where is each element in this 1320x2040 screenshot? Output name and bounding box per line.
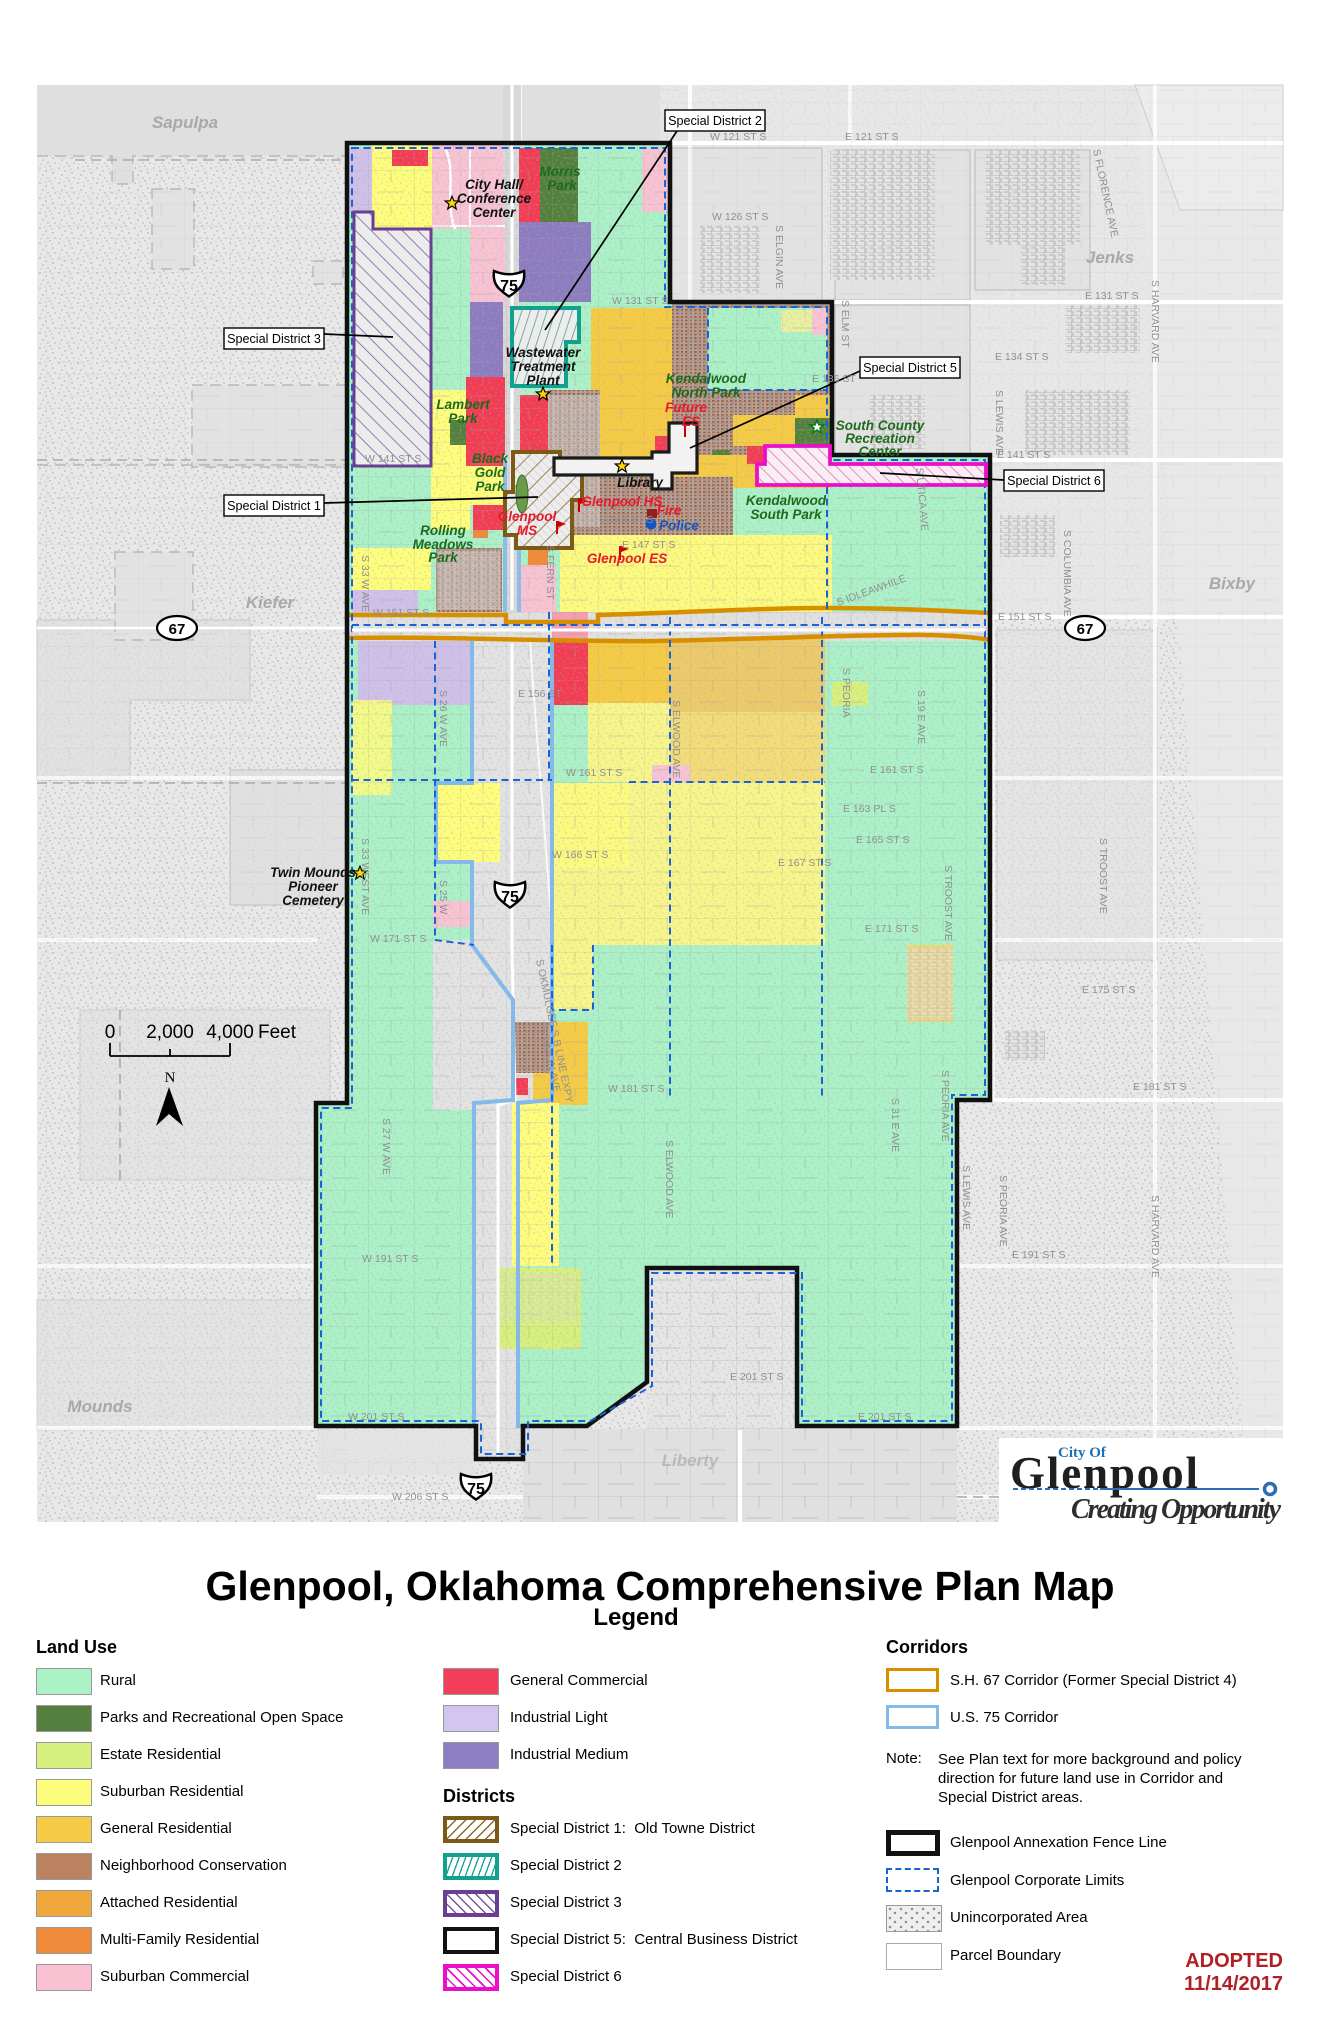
svg-text:Glenpool ES: Glenpool ES (587, 551, 667, 566)
svg-text:City Hall/: City Hall/ (465, 177, 524, 192)
svg-text:S TROOST AVE: S TROOST AVE (942, 865, 954, 941)
svg-text:S HARVARD AVE: S HARVARD AVE (1149, 280, 1161, 363)
svg-text:Special District 1: Special District 1 (227, 499, 321, 513)
svg-text:MS: MS (517, 523, 537, 538)
svg-text:Gold: Gold (475, 465, 506, 480)
svg-text:0: 0 (105, 1022, 116, 1043)
svg-text:Sapulpa: Sapulpa (152, 113, 218, 132)
svg-text:E 121 ST S: E 121 ST S (845, 131, 899, 143)
svg-text:E 131 ST S: E 131 ST S (1085, 290, 1139, 302)
svg-text:4,000: 4,000 (206, 1022, 254, 1043)
svg-text:Glenpool: Glenpool (498, 509, 557, 524)
svg-text:N: N (165, 1070, 176, 1086)
svg-text:Black: Black (472, 451, 510, 466)
svg-text:Treatment: Treatment (510, 359, 576, 374)
svg-text:South Park: South Park (750, 507, 823, 522)
svg-text:E 191 ST S: E 191 ST S (1012, 1249, 1066, 1261)
svg-text:67: 67 (1077, 621, 1094, 638)
svg-text:Special District 6: Special District 6 (1007, 474, 1101, 488)
svg-text:Feet: Feet (258, 1022, 297, 1043)
svg-text:W 131 ST S: W 131 ST S (612, 295, 668, 307)
svg-text:Liberty: Liberty (662, 1451, 720, 1470)
svg-text:E 161 ST S: E 161 ST S (870, 764, 924, 776)
svg-text:75: 75 (500, 278, 518, 295)
svg-text:E 181 ST S: E 181 ST S (1133, 1081, 1187, 1093)
svg-text:S ELWOOD AVE: S ELWOOD AVE (663, 1140, 675, 1218)
svg-text:W 126 ST S: W 126 ST S (712, 211, 768, 223)
svg-text:Park: Park (547, 178, 578, 193)
svg-text:S HARVARD AVE: S HARVARD AVE (1149, 1195, 1161, 1278)
svg-text:67: 67 (169, 621, 186, 638)
svg-text:Twin Mounds: Twin Mounds (270, 865, 356, 880)
svg-text:Park: Park (475, 479, 506, 494)
svg-text:Cemetery: Cemetery (282, 893, 345, 908)
svg-text:Plant: Plant (526, 373, 560, 388)
svg-text:E 146 ST S: E 146 ST S (600, 514, 654, 526)
svg-text:W 121 ST S: W 121 ST S (710, 131, 766, 143)
svg-text:Creating Opportunity: Creating Opportunity (1071, 1494, 1282, 1525)
svg-text:W 161 ST S: W 161 ST S (566, 767, 622, 779)
svg-text:Pioneer: Pioneer (288, 879, 338, 894)
svg-text:W 181 ST S: W 181 ST S (608, 1083, 664, 1095)
svg-text:75: 75 (501, 889, 519, 906)
svg-text:S ELM ST: S ELM ST (839, 300, 851, 348)
svg-text:E 136 ST: E 136 ST (812, 373, 856, 385)
svg-text:Jenks: Jenks (1086, 248, 1134, 267)
svg-text:Future: Future (665, 400, 707, 415)
svg-text:ES: ES (682, 414, 700, 429)
svg-text:S 19 E AVE: S 19 E AVE (915, 690, 927, 744)
svg-text:S PEORIA AVE: S PEORIA AVE (997, 1175, 1009, 1247)
svg-text:Glenpool HS: Glenpool HS (582, 494, 663, 509)
svg-text:Lambert: Lambert (436, 397, 490, 412)
svg-text:Park: Park (448, 411, 479, 426)
svg-text:Center: Center (859, 444, 903, 459)
svg-text:W 166 ST S: W 166 ST S (552, 849, 608, 861)
svg-text:E 156 ST: E 156 ST (518, 688, 562, 700)
svg-text:Wastewater: Wastewater (506, 345, 582, 360)
svg-text:E 171 ST S: E 171 ST S (865, 923, 919, 935)
svg-text:Mounds: Mounds (67, 1397, 132, 1416)
svg-text:Conference: Conference (457, 191, 532, 206)
svg-text:Park: Park (428, 550, 459, 565)
svg-text:E 201 ST S: E 201 ST S (858, 1411, 912, 1423)
svg-text:S TROOST AVE: S TROOST AVE (1097, 838, 1109, 914)
svg-text:E 163 PL S: E 163 PL S (843, 803, 896, 815)
svg-text:North Park: North Park (671, 385, 742, 400)
svg-text:S LEWIS AVE: S LEWIS AVE (993, 390, 1005, 455)
svg-text:Center: Center (473, 205, 517, 220)
svg-text:Fire: Fire (657, 503, 682, 518)
svg-text:S ELGIN AVE: S ELGIN AVE (773, 225, 785, 289)
svg-text:2,000: 2,000 (146, 1022, 194, 1043)
svg-text:S ELWOOD AVE: S ELWOOD AVE (670, 700, 682, 778)
svg-text:Special District 5: Special District 5 (863, 361, 957, 375)
svg-text:Rolling: Rolling (420, 523, 466, 538)
svg-text:Kendalwood: Kendalwood (666, 371, 747, 386)
svg-text:S 33 WEST AVE: S 33 WEST AVE (359, 838, 371, 915)
svg-text:W 171 ST S: W 171 ST S (370, 933, 426, 945)
svg-text:E 175 ST S: E 175 ST S (1082, 984, 1136, 996)
svg-text:S PEORIA: S PEORIA (840, 668, 852, 718)
svg-text:E 165 ST S: E 165 ST S (856, 834, 910, 846)
svg-text:Kiefer: Kiefer (246, 593, 296, 612)
svg-text:W 141 ST S: W 141 ST S (365, 453, 421, 465)
svg-text:S 27 W AVE: S 27 W AVE (380, 1118, 392, 1175)
svg-text:S FERN ST: S FERN ST (544, 545, 556, 600)
svg-text:Glenpool: Glenpool (1010, 1448, 1198, 1498)
svg-text:S LEWIS AVE: S LEWIS AVE (960, 1165, 972, 1230)
svg-text:Special District 2: Special District 2 (668, 114, 762, 128)
svg-text:S 31 E AVE: S 31 E AVE (889, 1098, 901, 1152)
svg-text:E 134 ST S: E 134 ST S (995, 351, 1049, 363)
svg-text:Special District 3: Special District 3 (227, 332, 321, 346)
svg-text:S 25 W: S 25 W (437, 880, 449, 915)
svg-text:E 151 ST S: E 151 ST S (998, 611, 1052, 623)
svg-text:Bixby: Bixby (1209, 574, 1257, 593)
svg-text:W 201 ST S: W 201 ST S (348, 1411, 404, 1423)
svg-text:W 191 ST S: W 191 ST S (362, 1253, 418, 1265)
svg-text:S 26 W AVE: S 26 W AVE (437, 690, 449, 747)
svg-text:W 206 ST S: W 206 ST S (392, 1491, 448, 1503)
svg-text:E 201 ST S: E 201 ST S (730, 1371, 784, 1383)
svg-text:W 151 ST S: W 151 ST S (373, 607, 429, 619)
svg-text:Police: Police (659, 518, 699, 533)
svg-text:Kendalwood: Kendalwood (746, 493, 827, 508)
svg-text:Library: Library (617, 475, 664, 490)
svg-text:S COLUMBIA AVE: S COLUMBIA AVE (1061, 530, 1073, 617)
svg-text:75: 75 (467, 1481, 485, 1498)
svg-text:E 167 ST S: E 167 ST S (778, 857, 832, 869)
svg-text:S PEORIA AVE: S PEORIA AVE (939, 1070, 951, 1142)
svg-text:Morris: Morris (539, 164, 581, 179)
svg-text:S 33 W AVE: S 33 W AVE (359, 555, 371, 612)
svg-text:E 147 ST S: E 147 ST S (622, 539, 676, 551)
